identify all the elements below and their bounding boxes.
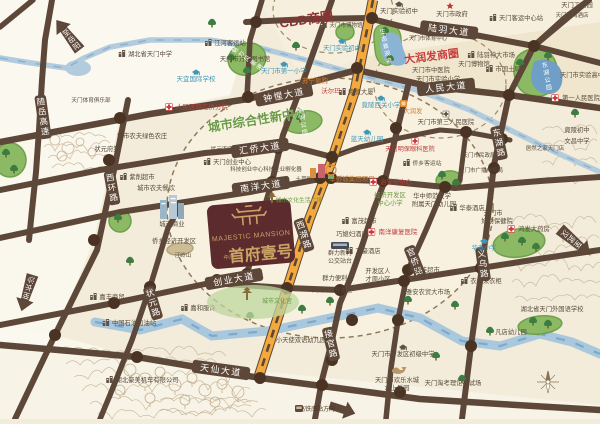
svg-text:城市农夫餐饮: 城市农夫餐饮: [137, 183, 175, 192]
svg-text:物贸大厦: 物贸大厦: [348, 87, 374, 96]
svg-text:状元府第: 状元府第: [94, 144, 119, 153]
svg-text:中心小学: 中心小学: [377, 198, 402, 207]
svg-text:水上乐园: 水上乐园: [384, 383, 409, 392]
svg-text:天门市开发区初级中学: 天门市开发区初级中学: [372, 349, 435, 358]
svg-text:天门实验初中: 天门实验初中: [323, 43, 361, 52]
svg-text:紫削超市: 紫削超市: [129, 172, 154, 181]
svg-text:市国土局: 市国土局: [495, 64, 520, 73]
svg-text:公: 公: [300, 121, 307, 129]
svg-text:天门市实验高中: 天门市实验高中: [560, 70, 600, 79]
svg-text:天门经济开发区: 天门经济开发区: [312, 286, 353, 294]
svg-text:天门市第一小学: 天门市第一小学: [261, 66, 307, 75]
svg-text:湖北省天门中学: 湖北省天门中学: [128, 49, 172, 58]
svg-text:中国石油加油站: 中国石油加油站: [112, 318, 157, 327]
svg-text:华中师范大学: 华中师范大学: [413, 191, 451, 200]
svg-text:天门市: 天门市: [484, 208, 503, 217]
svg-text:侨乡经济开发区: 侨乡经济开发区: [152, 236, 196, 245]
svg-text:陆羽神大市场: 陆羽神大市场: [477, 50, 515, 59]
svg-text:嘉丰商贸: 嘉丰商贸: [99, 292, 124, 301]
svg-text:妇幼保健院: 妇幼保健院: [481, 216, 513, 225]
svg-text:状元农家: 状元农家: [210, 145, 233, 153]
svg-text:天门市政府: 天门市政府: [436, 9, 467, 18]
svg-text:城市文化生活广场: 城市文化生活广场: [276, 196, 323, 204]
svg-text:附属天门幼儿园: 附属天门幼儿园: [412, 199, 456, 208]
svg-text:华侨城集团项目: 华侨城集团项目: [329, 174, 375, 183]
svg-text:天门博物馆: 天门博物馆: [458, 59, 489, 68]
svg-text:天门市中医院: 天门市中医院: [412, 65, 450, 74]
svg-text:天宜国际学校: 天宜国际学校: [177, 74, 217, 83]
svg-text:城市商业: 城市商业: [159, 219, 184, 228]
svg-text:竟陵西关小学: 竟陵西关小学: [362, 100, 402, 109]
svg-text:鸿发大药房: 鸿发大药房: [518, 224, 549, 233]
svg-text:居然之家天门店: 居然之家天门店: [526, 144, 565, 152]
svg-text:沃尔玛: 沃尔玛: [321, 86, 341, 95]
svg-text:巧媳妇酒店: 巧媳妇酒店: [336, 229, 367, 238]
svg-text:公交站台: 公交站台: [328, 257, 352, 265]
svg-text:科技创业中心科技企业孵化器: 科技创业中心科技企业孵化器: [230, 165, 302, 173]
svg-text:天门创业中心: 天门创业中心: [213, 157, 251, 166]
svg-text:治安分中心: 治安分中心: [380, 177, 412, 186]
svg-text:大润发: 大润发: [404, 106, 424, 115]
svg-text:小天使双语幼儿园: 小天使双语幼儿园: [276, 335, 326, 344]
svg-text:天门市民政局: 天门市民政局: [462, 151, 495, 159]
svg-text:群力新村: 群力新村: [328, 249, 352, 257]
svg-text:天门工业园: 天门工业园: [561, 0, 592, 9]
svg-text:天门市第三人民医院: 天门市第三人民医院: [418, 117, 475, 126]
svg-text:天门实验初中: 天门实验初中: [380, 6, 418, 15]
svg-text:公: 公: [544, 76, 551, 84]
svg-text:城市文化宫: 城市文化宫: [262, 297, 292, 305]
svg-text:蓝天幼儿园: 蓝天幼儿园: [351, 134, 384, 143]
svg-text:经济开发区: 经济开发区: [374, 190, 405, 199]
svg-text:才周小区: 才周小区: [365, 274, 390, 283]
svg-text:汪岭山: 汪岭山: [175, 251, 192, 259]
svg-text:湖北豪美机车有限公司: 湖北豪美机车有限公司: [116, 375, 179, 384]
svg-text:城市农夫绿色农庄: 城市农夫绿色农庄: [117, 131, 167, 140]
svg-text:富茂超市: 富茂超市: [351, 216, 376, 225]
svg-text:天门市实验小学: 天门市实验小学: [416, 74, 460, 83]
svg-text:天门体育俱乐部: 天门体育俱乐部: [71, 96, 111, 104]
svg-text:万豪酒店: 万豪酒店: [355, 246, 380, 255]
svg-text:园: 园: [545, 84, 552, 92]
svg-text:湖北省天门外国语学校: 湖北省天门外国语学校: [521, 304, 585, 313]
svg-text:凡店幼儿园: 凡店幼儿园: [495, 327, 526, 336]
svg-text:园: 园: [301, 129, 308, 137]
svg-text:雅安农贸大市场: 雅安农贸大市场: [406, 287, 450, 296]
svg-text:南洋康复医院: 南洋康复医院: [379, 227, 419, 236]
svg-text:人民医院汇侨分院: 人民医院汇侨分院: [176, 102, 229, 111]
svg-text:天门客运中心站: 天门客运中心站: [499, 13, 544, 22]
svg-text:江河客运站: 江河客运站: [214, 38, 246, 47]
svg-text:苏宁易购: 苏宁易购: [302, 76, 329, 85]
svg-text:天门市博物馆: 天门市博物馆: [329, 21, 363, 29]
svg-text:华泰小学: 华泰小学: [472, 244, 497, 252]
svg-text:高铁南站方向: 高铁南站方向: [299, 405, 335, 413]
svg-text:天门市欢乐水城: 天门市欢乐水城: [375, 375, 420, 384]
svg-text:文昌中学: 文昌中学: [564, 136, 589, 145]
svg-text:开发区人: 开发区人: [365, 266, 391, 275]
svg-text:天门港湾酒店: 天门港湾酒店: [555, 11, 589, 19]
svg-text:华泰酒店: 华泰酒店: [459, 203, 484, 212]
svg-text:天门明保眼科医院: 天门明保眼科医院: [385, 145, 435, 153]
svg-text:群力便利店: 群力便利店: [322, 273, 353, 282]
svg-text:侨乡客运站: 侨乡客运站: [413, 159, 442, 167]
svg-text:第一人民医院: 第一人民医院: [562, 93, 600, 102]
svg-text:竟陵初中: 竟陵初中: [564, 125, 589, 134]
svg-text:天门市体育中心: 天门市体育中心: [409, 34, 448, 42]
svg-text:天门淘考理论考试场: 天门淘考理论考试场: [425, 378, 482, 387]
svg-text:衣福来衣柜: 衣福来衣柜: [470, 276, 501, 285]
svg-text:天门市广播电视局: 天门市广播电视局: [459, 166, 503, 174]
svg-text:美乐佳超市: 美乐佳超市: [408, 265, 439, 274]
